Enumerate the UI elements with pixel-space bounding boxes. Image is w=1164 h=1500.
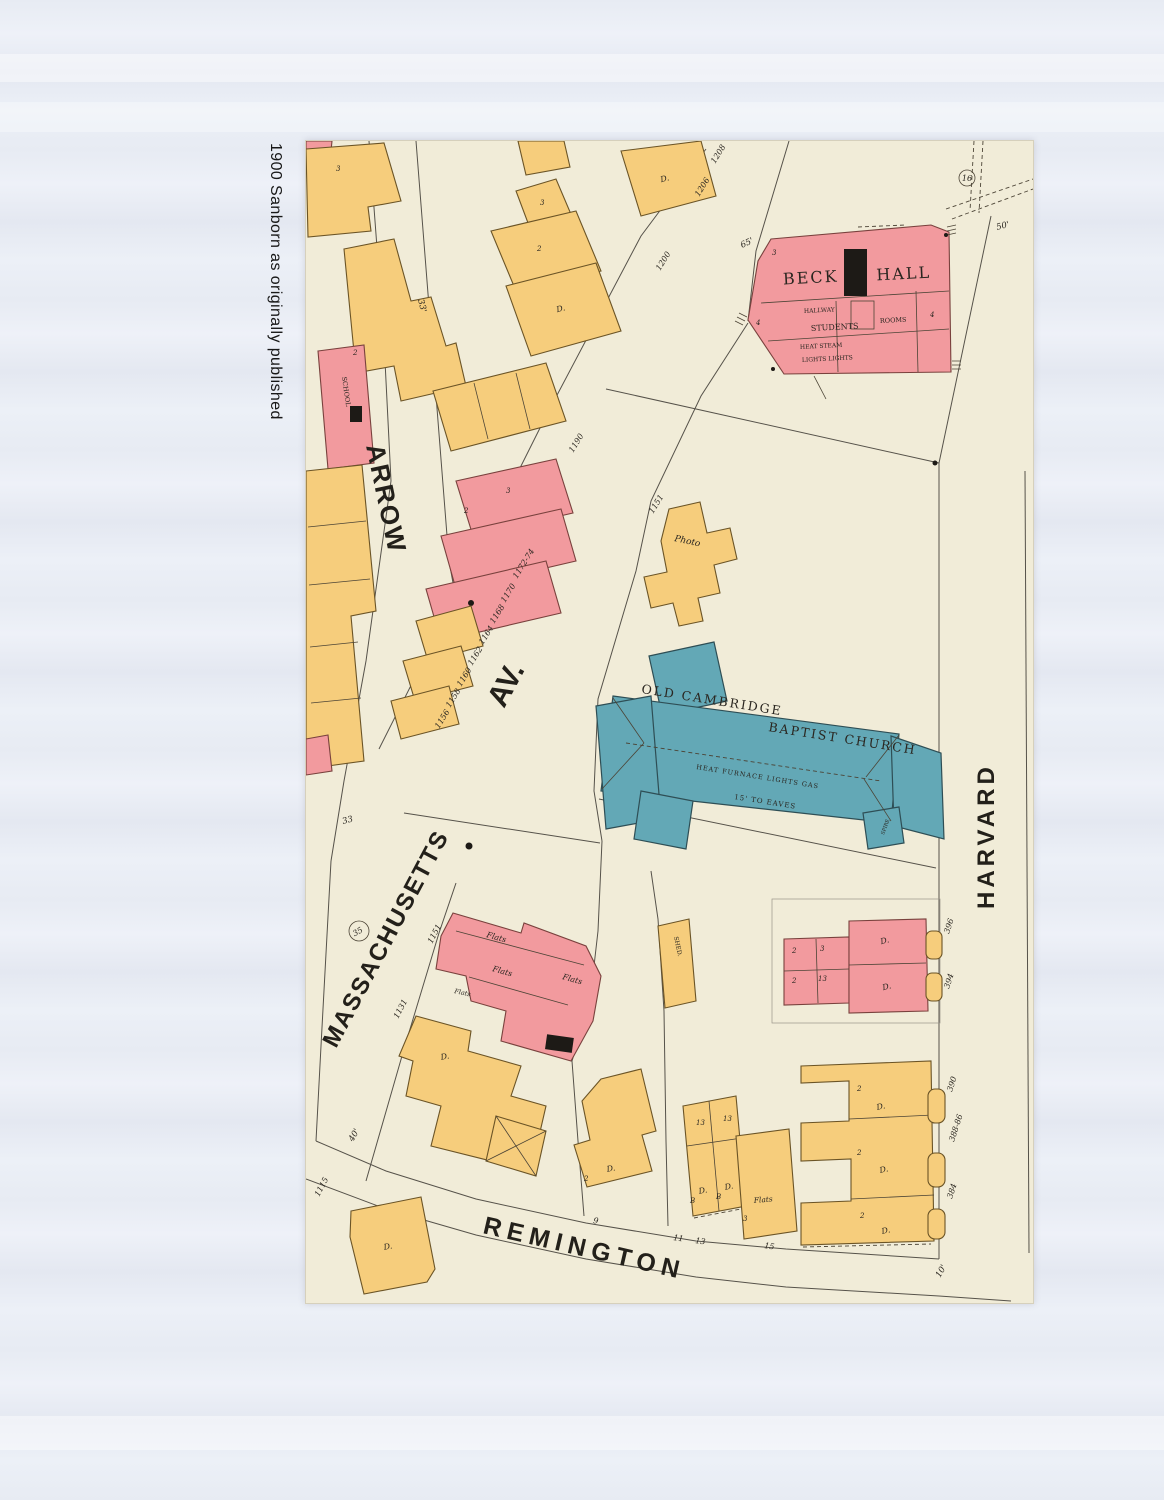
dwelling-label: D. bbox=[439, 1051, 450, 1062]
shed-building bbox=[658, 919, 696, 1008]
beck-rooms: ROOMS bbox=[880, 316, 907, 325]
bay-window bbox=[928, 1089, 945, 1123]
dwelling-label: D. bbox=[605, 1163, 616, 1174]
flats-label: Flats bbox=[752, 1194, 773, 1205]
yellow-building bbox=[518, 141, 570, 175]
pink-double-house-east bbox=[849, 919, 928, 1013]
basement-label: B bbox=[715, 1193, 721, 1201]
house-number: 388-86 bbox=[947, 1113, 964, 1143]
scan-band bbox=[0, 1416, 1164, 1450]
unit-number: 13 bbox=[696, 1119, 705, 1127]
house-number: 13 bbox=[695, 1236, 706, 1246]
street-label-harvard: HARVARD bbox=[973, 763, 1000, 909]
house-number: 1200 bbox=[654, 250, 672, 272]
pink-building-small bbox=[306, 735, 332, 775]
unit-number: 2 bbox=[791, 977, 797, 985]
unit-number: 3 bbox=[336, 165, 341, 173]
elevator-shaft bbox=[844, 249, 867, 296]
unit-number: 2 bbox=[352, 349, 358, 357]
corner-dot bbox=[933, 461, 938, 466]
unit-number: 13 bbox=[818, 975, 827, 983]
unit-number: 2 bbox=[536, 245, 542, 253]
unit-number: 3 bbox=[540, 199, 545, 207]
harvard-east-edge bbox=[1025, 471, 1029, 1253]
house-number: 384 bbox=[945, 1182, 958, 1199]
beck-top-dash bbox=[858, 225, 906, 227]
unit-number: 2 bbox=[856, 1149, 862, 1157]
dimension: 65' bbox=[739, 236, 755, 251]
unit-number: 2 bbox=[791, 947, 797, 955]
yellow-building bbox=[306, 143, 401, 237]
unit-number: 2 bbox=[859, 1212, 865, 1220]
unit-number: 2 bbox=[583, 1175, 589, 1183]
house-number: 15 bbox=[764, 1241, 775, 1251]
house-number: 1190 bbox=[567, 432, 585, 454]
bay-window bbox=[928, 1153, 945, 1187]
bay-window bbox=[926, 931, 942, 959]
house-number: 396 bbox=[942, 917, 955, 934]
unit-number: 3 bbox=[743, 1215, 748, 1223]
unit-number: 2 bbox=[856, 1085, 862, 1093]
beck-lot-a: 3 bbox=[772, 249, 777, 257]
house-number: 11 bbox=[673, 1233, 684, 1243]
beck-lot-b: 4 bbox=[929, 311, 934, 319]
corner-dot bbox=[944, 233, 948, 237]
unit-number: 13 bbox=[723, 1115, 732, 1123]
mass-ave-west-edge bbox=[316, 861, 331, 1141]
track-dash-4 bbox=[979, 141, 983, 213]
bay-window bbox=[928, 1209, 945, 1239]
shutter-ticks bbox=[735, 313, 747, 325]
dimension: 50' bbox=[995, 220, 1010, 233]
street-label-av: AV. bbox=[481, 657, 531, 712]
scan-band bbox=[0, 102, 1164, 132]
sanborn-map: 3 SCHOOL 2 3 D. 2 bbox=[306, 141, 1033, 1303]
beck-hall-block: BECK HALL HALLWAY STUDENTS ROOMS HEAT ST… bbox=[735, 225, 961, 399]
beck-lot-c: 4 bbox=[755, 319, 760, 327]
beck-porch-line bbox=[814, 376, 826, 399]
house-number: 390 bbox=[945, 1075, 958, 1092]
scan-band bbox=[0, 54, 1164, 82]
unit-number: 2 bbox=[463, 507, 469, 515]
dwelling-label: D. bbox=[723, 1181, 734, 1192]
corner-house bbox=[350, 1197, 435, 1294]
unit-number: 3 bbox=[820, 945, 825, 953]
dimension: 40' bbox=[346, 1127, 362, 1144]
beck-name-right: HALL bbox=[876, 263, 932, 285]
corner-dot bbox=[771, 367, 775, 371]
yellow-row-strip bbox=[306, 465, 376, 769]
chimney-block bbox=[350, 406, 362, 422]
map-sheet: 3 SCHOOL 2 3 D. 2 bbox=[305, 140, 1034, 1304]
rowhouse-comb bbox=[801, 1061, 934, 1245]
corner-number: 16 bbox=[962, 174, 972, 183]
hydrant-dot bbox=[468, 600, 474, 606]
track-dash-2 bbox=[952, 189, 1033, 219]
house-number: 1151 bbox=[647, 493, 665, 515]
house-number: 1131 bbox=[392, 998, 410, 1020]
house-number: 394 bbox=[942, 972, 955, 989]
caption-vertical: 1900 Sanborn as originally published bbox=[266, 143, 284, 420]
dwelling-label: D. bbox=[382, 1241, 393, 1252]
dimension: 10' bbox=[934, 1263, 949, 1279]
unit-number: 3 bbox=[506, 487, 511, 495]
church-southwest-ext bbox=[634, 791, 693, 849]
house-number: 1208 bbox=[709, 143, 727, 165]
dwelling-label: D. bbox=[697, 1185, 708, 1196]
beck-name-left: BECK bbox=[782, 267, 839, 289]
photo-building bbox=[644, 502, 737, 626]
house-number: 9 bbox=[593, 1216, 599, 1226]
beck-block-south-line bbox=[606, 389, 939, 463]
dimension: 33 bbox=[341, 814, 354, 826]
block-number: 35 bbox=[351, 925, 364, 938]
shutter-ticks bbox=[952, 361, 961, 369]
bay-window bbox=[926, 973, 942, 1001]
church-block: Photo OLD CAMBRIDGE BAPTIST CHURCH HEAT … bbox=[596, 461, 944, 1014]
beck-hall-building bbox=[748, 225, 951, 374]
hydrant-dot bbox=[466, 843, 473, 850]
scanned-page: 1900 Sanborn as originally published bbox=[0, 0, 1164, 1500]
basement-label: B bbox=[689, 1197, 695, 1205]
